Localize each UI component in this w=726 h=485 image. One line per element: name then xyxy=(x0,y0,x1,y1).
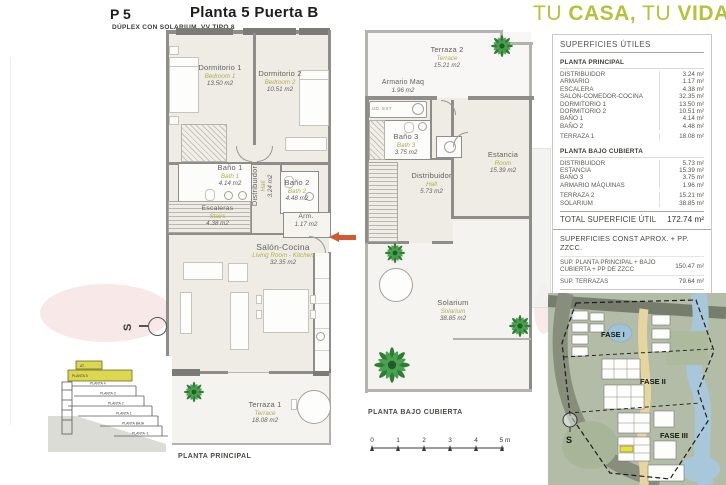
scale-bar: 0 1 2 3 4 5 m xyxy=(366,434,511,456)
dining-table xyxy=(263,289,309,333)
wardrobe xyxy=(181,124,227,162)
section-floor-label: PLANTA 4 xyxy=(90,382,106,386)
room-name: Distribuidor xyxy=(251,151,260,221)
entrance-arrow-icon xyxy=(338,235,356,240)
room-area: 15.21 m2 xyxy=(413,62,481,69)
room-label-escaleras: Escaleras Stairs 4.38 m2 xyxy=(190,205,245,228)
ac-fan-icon xyxy=(412,103,424,115)
room-label-armario-maq: Armario Maq 1.96 m2 xyxy=(374,79,432,95)
areas-panel: SUPERFICIES ÚTILES PLANTA PRINCIPAL DIST… xyxy=(552,34,712,310)
parapet xyxy=(365,389,532,392)
table-row: SUP. PLANTA PRINCIPAL + BAJO CUBIERTA + … xyxy=(560,256,704,275)
wall xyxy=(166,233,283,235)
slogan-word: CASA, xyxy=(568,2,636,25)
row-label: BAÑO 3 xyxy=(560,174,659,181)
row-label: BAÑO 2 xyxy=(560,123,659,130)
sink xyxy=(224,191,233,200)
map-south-label: S xyxy=(566,435,572,445)
map-label-fase3: FASE III xyxy=(660,431,688,440)
counter-divider xyxy=(315,328,329,329)
slogan-word: TU xyxy=(642,2,671,25)
row-label: DISTRIBUIDOR xyxy=(560,160,659,167)
row-label: TERRAZA 1 xyxy=(560,133,659,140)
room-name-en: Stairs xyxy=(190,213,245,220)
wall xyxy=(451,216,531,219)
row-label: SALON-COMEDOR-COCINA xyxy=(560,93,659,100)
row-label: DORMITORIO 1 xyxy=(560,101,659,108)
room-area: 5.73 m2 xyxy=(404,188,459,195)
panel-divider xyxy=(553,229,711,230)
wall xyxy=(529,96,532,392)
row-value: 13.50 m² xyxy=(659,101,704,108)
row-value: 3.24 m² xyxy=(659,71,704,78)
compass-line xyxy=(139,325,148,327)
plant-icon xyxy=(507,313,533,339)
kitchen-sink xyxy=(316,332,325,341)
room-label-bano3: Baño 3 Bath 3 3.75 m2 xyxy=(381,133,431,157)
wall xyxy=(468,96,534,100)
chair xyxy=(256,310,262,319)
parapet xyxy=(529,42,532,98)
room-name: Escaleras xyxy=(190,205,245,213)
section-floor-label: PLANTA 2 xyxy=(108,402,124,406)
room-name: Dormitorio 2 xyxy=(245,70,315,79)
plant-icon xyxy=(383,241,407,265)
table-row: TERRAZA 215.21 m² xyxy=(560,192,704,199)
row-value: 79.64 m² xyxy=(664,278,704,285)
table-row: ARMARIO1.17 m² xyxy=(560,78,704,85)
scale-tick-label: 2 xyxy=(422,437,426,444)
compass-circle-icon xyxy=(148,317,167,336)
row-label: ESCALERA xyxy=(560,86,659,93)
ac-unit-label: UD. EXT xyxy=(372,106,406,111)
row-value: 4.14 m² xyxy=(659,115,704,122)
dresser xyxy=(285,137,327,151)
scale-tick-label: 3 xyxy=(448,437,452,444)
wall xyxy=(365,96,437,100)
wall-lintel xyxy=(299,28,330,35)
slogan-word: VIDA xyxy=(678,2,726,25)
section-heading: PLANTA PRINCIPAL xyxy=(560,57,704,69)
section-floor-label: PLANTA BAJA xyxy=(122,422,145,426)
parapet xyxy=(365,30,368,98)
room-area: 3.75 m2 xyxy=(381,149,431,156)
room-area: 15.39 m2 xyxy=(474,167,532,174)
table-row: BAÑO 24.48 m² xyxy=(560,123,704,130)
section-heading: PLANTA BAJO CUBIERTA xyxy=(560,146,704,158)
room-name-en: Bath 3 xyxy=(381,142,431,149)
plant-icon xyxy=(489,33,515,59)
row-label: DISTRIBUIDOR xyxy=(560,71,659,78)
plan-code: P 5 xyxy=(110,6,131,22)
parapet xyxy=(166,443,331,445)
row-value: 4.48 m² xyxy=(659,123,704,130)
page-edge-line xyxy=(10,57,11,425)
room-label-dormitorio2: Dormitorio 2 Bedroom 2 10.51 m2 xyxy=(245,70,315,94)
row-value: 3.75 m² xyxy=(659,174,704,181)
sink xyxy=(418,122,427,131)
room-name-en: Solarium xyxy=(424,308,482,315)
wall-lintel xyxy=(243,28,296,35)
map-highlighted-unit xyxy=(620,446,633,452)
counter-divider xyxy=(315,278,329,279)
table-row: ARMARIO MÁQUINAS1.96 m² xyxy=(560,182,704,189)
row-label: ARMARIO MÁQUINAS xyxy=(560,182,659,189)
room-label-solarium: Solarium Solarium 38.85 m2 xyxy=(424,299,482,323)
row-value: 150.47 m² xyxy=(664,263,704,270)
brochure-page: P 5 Planta 5 Puerta B DÚPLEX CON SOLARIU… xyxy=(0,0,726,485)
room-label-distribuidor: Distribuidor Hall 3.24 m2 xyxy=(251,151,281,221)
row-label: SUP. TERRAZAS xyxy=(560,278,664,285)
room-name: Terraza 2 xyxy=(413,46,481,55)
sliding-door xyxy=(228,372,269,373)
table-row: SALON-COMEDOR-COCINA32.35 m² xyxy=(560,93,704,100)
scale-tick-label: 5 m xyxy=(500,437,511,444)
room-label-terraza1: Terraza 1 Terrace 18.08 m2 xyxy=(235,401,295,425)
map-river xyxy=(680,456,720,482)
const-table-title: SUPERFICIES CONST APROX. + PP. ZZCC. xyxy=(560,234,704,252)
table-row: BAÑO 33.75 m² xyxy=(560,174,704,181)
table-row: DISTRIBUIDOR5.73 m² xyxy=(560,160,704,167)
brand-slogan: TU CASA, TU VIDA xyxy=(533,2,715,26)
row-value: 1.17 m² xyxy=(659,78,704,85)
room-name: Armario Maq xyxy=(374,79,432,87)
table-row: BAÑO 14.14 m² xyxy=(560,115,704,122)
total-label: TOTAL SUPERFICIE ÚTIL xyxy=(560,215,667,224)
table-row: SUP. TERRAZAS79.64 m² xyxy=(560,275,704,287)
map-green xyxy=(666,331,708,365)
table-row: DORMITORIO 113.50 m² xyxy=(560,101,704,108)
room-name-en: Terrace xyxy=(413,55,481,62)
room-name-en: Living Room - Kitchen xyxy=(238,252,328,259)
total-value: 172.74 m² xyxy=(667,215,704,224)
room-area: 1.96 m2 xyxy=(374,87,432,94)
scale-tick-label: 0 xyxy=(370,437,374,444)
room-name: Arm. xyxy=(284,213,328,221)
chair xyxy=(310,295,316,304)
solarium-floor xyxy=(453,221,531,243)
row-label: SOLARIUM xyxy=(560,200,659,207)
row-value: 1.96 m² xyxy=(659,182,704,189)
room-label-armario: Arm. 1.17 m2 xyxy=(284,213,328,228)
plan-caption-bajo-cubierta: PLANTA BAJO CUBIERTA xyxy=(368,409,463,416)
page-title: Planta 5 Puerta B xyxy=(190,4,318,21)
wall-lintel xyxy=(176,28,233,35)
room-name-en: Hall xyxy=(404,181,459,188)
counter-divider xyxy=(315,350,329,351)
row-label: SUP. PLANTA PRINCIPAL + BAJO CUBIERTA + … xyxy=(560,259,664,273)
areas-panel-title: SUPERFICIES ÚTILES xyxy=(560,40,704,53)
site-map: FASE I FASE II FASE III S xyxy=(548,293,726,485)
patio-table xyxy=(379,268,413,302)
room-name: Solarium xyxy=(424,299,482,308)
room-name-en: Bedroom 2 xyxy=(245,79,315,86)
toilet xyxy=(205,189,215,201)
map-label-fase1: FASE I xyxy=(601,330,625,339)
sideboard xyxy=(183,262,223,280)
chair xyxy=(256,295,262,304)
room-area: 3.24 m2 xyxy=(267,151,274,221)
section-diagram: AT. PLANTA 5 PLANTA 4 PLANTA 3 PLANTA 2 … xyxy=(48,356,172,454)
room-name: Distribuidor xyxy=(404,172,459,181)
parapet xyxy=(365,243,368,393)
wall-pillar xyxy=(172,369,200,376)
section-floor-label: PLANTA 3 xyxy=(100,392,116,396)
plant-icon xyxy=(182,380,206,404)
room-label-estancia: Estancia Room 15.39 m2 xyxy=(474,151,532,175)
map-label-fase2: FASE II xyxy=(640,377,666,386)
background-blob xyxy=(529,148,551,308)
plan-caption-principal: PLANTA PRINCIPAL xyxy=(178,453,251,460)
room-name-en: Terrace xyxy=(235,410,295,417)
table-row: SOLARIUM38.85 m² xyxy=(560,200,704,207)
row-value: 5.73 m² xyxy=(659,160,704,167)
map-compass-icon xyxy=(563,413,577,427)
section-floor-label: PLANTA 1 xyxy=(116,412,132,416)
total-util-row: TOTAL SUPERFICIE ÚTIL 172.74 m² xyxy=(560,211,704,224)
room-area: 38.85 m2 xyxy=(424,315,482,322)
compass-south-label: S xyxy=(122,317,138,331)
row-value: 10.51 m² xyxy=(659,108,704,115)
room-name: Terraza 1 xyxy=(235,401,295,410)
sink xyxy=(238,191,247,200)
room-name: Salón-Cocina xyxy=(238,242,328,252)
room-label-distribuidor2: Distribuidor Hall 5.73 m2 xyxy=(404,172,459,196)
row-value: 32.35 m² xyxy=(659,93,704,100)
section-floor-label: PLANTA 5 xyxy=(72,374,88,378)
wall xyxy=(432,241,453,244)
table-row: DISTRIBUIDOR3.24 m² xyxy=(560,71,704,78)
room-name: Baño 3 xyxy=(381,133,431,142)
sofa xyxy=(180,292,192,334)
room-label-terraza2: Terraza 2 Terrace 15.21 m2 xyxy=(413,46,481,70)
scale-tick-label: 4 xyxy=(474,437,478,444)
row-label: ARMARIO xyxy=(560,78,659,85)
section-floor-label: PLANTA -1 xyxy=(132,432,149,436)
parapet xyxy=(365,30,502,33)
row-value: 18.08 m² xyxy=(659,133,704,140)
room-name-en: Room xyxy=(474,160,532,167)
stairs xyxy=(368,162,398,242)
row-value: 15.21 m² xyxy=(659,192,704,199)
wall xyxy=(328,30,331,238)
room-area: 32.35 m2 xyxy=(238,259,328,266)
row-value: 38.85 m² xyxy=(659,200,704,207)
table-row: ESCALERA4.38 m² xyxy=(560,86,704,93)
room-name-en: Hall xyxy=(260,151,267,221)
table-row: TERRAZA 118.08 m² xyxy=(560,133,704,140)
nightstand xyxy=(169,46,179,55)
row-value: 15.39 m² xyxy=(659,167,704,174)
room-label-salon: Salón-Cocina Living Room - Kitchen 32.35… xyxy=(238,242,328,267)
plant-icon xyxy=(371,344,413,386)
counter-divider xyxy=(315,303,329,304)
sofa xyxy=(230,292,249,350)
row-label: TERRAZA 2 xyxy=(560,192,659,199)
slogan-word: TU xyxy=(533,2,562,25)
entrance-arrow-icon xyxy=(329,232,339,242)
room-area: 18.08 m2 xyxy=(235,417,295,424)
row-value: 4.38 m² xyxy=(659,86,704,93)
room-area: 1.17 m2 xyxy=(284,221,328,228)
patio-table xyxy=(297,390,331,424)
chair xyxy=(310,310,316,319)
nightstand xyxy=(169,116,179,125)
scale-tick-label: 1 xyxy=(396,437,400,444)
row-label: BAÑO 1 xyxy=(560,115,659,122)
room-area: 4.38 m2 xyxy=(190,220,245,227)
section-floor-label: AT. xyxy=(80,364,85,368)
room-area: 10.51 m2 xyxy=(245,86,315,93)
room-name: Estancia xyxy=(474,151,532,160)
